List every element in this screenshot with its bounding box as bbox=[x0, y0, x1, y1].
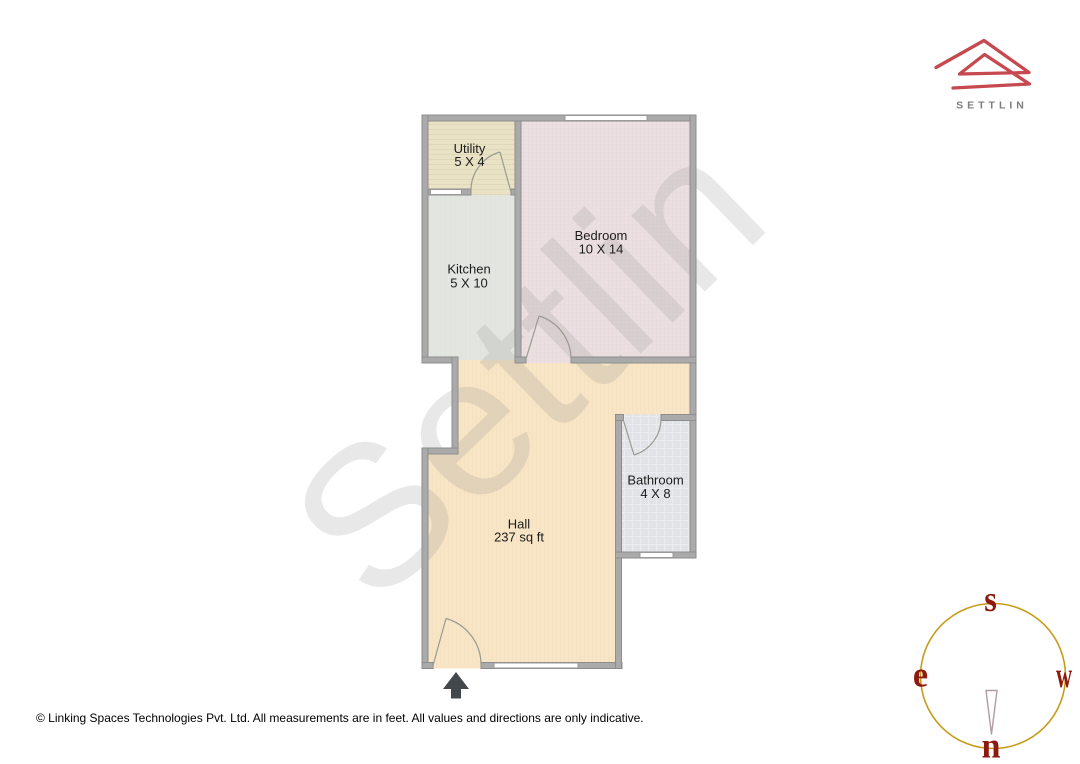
svg-text:5 X 4: 5 X 4 bbox=[454, 154, 484, 169]
svg-text:Kitchen: Kitchen bbox=[447, 262, 490, 277]
svg-text:SETTLIN: SETTLIN bbox=[956, 100, 1028, 112]
svg-text:w: w bbox=[1056, 656, 1072, 696]
svg-text:n: n bbox=[981, 726, 1000, 764]
svg-text:10 X 14: 10 X 14 bbox=[579, 242, 624, 257]
svg-text:5 X 10: 5 X 10 bbox=[450, 276, 488, 291]
svg-text:e: e bbox=[913, 655, 928, 695]
svg-text:s: s bbox=[984, 579, 997, 619]
svg-text:237 sq ft: 237 sq ft bbox=[494, 530, 544, 545]
svg-text:4 X 8: 4 X 8 bbox=[640, 486, 670, 501]
svg-text:© Linking Spaces Technologies: © Linking Spaces Technologies Pvt. Ltd. … bbox=[36, 711, 644, 725]
